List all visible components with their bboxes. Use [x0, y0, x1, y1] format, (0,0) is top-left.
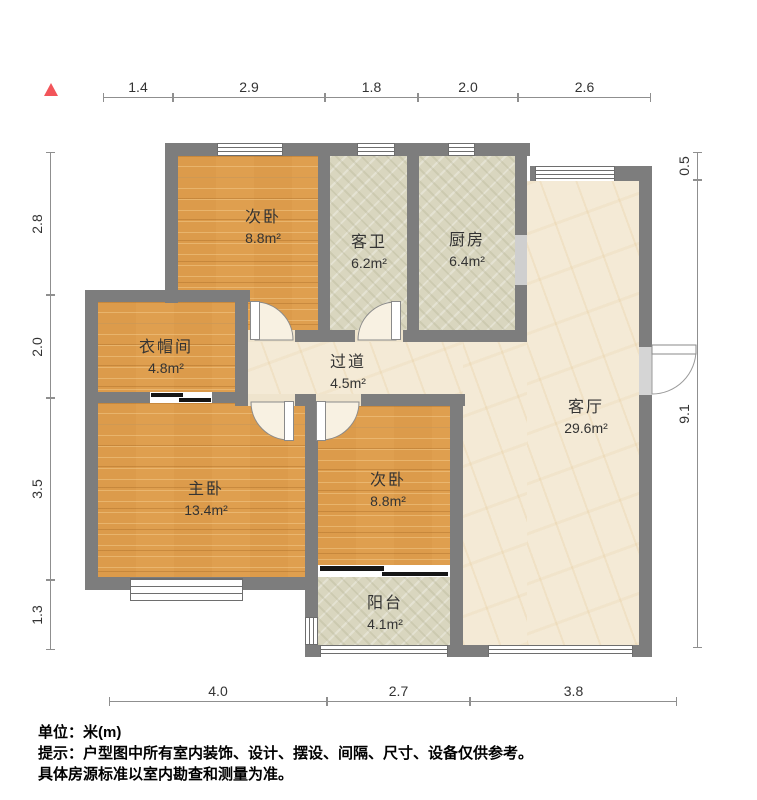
room-name: 衣帽间 [139, 333, 193, 357]
door-arc-bedroom-bottom [321, 402, 359, 440]
room-area: 6.2m² [351, 255, 387, 271]
sliding-door-balcony [320, 565, 448, 577]
door-arc-master-bedroom [251, 402, 289, 440]
window-balcony-side [305, 617, 318, 645]
dim-top-seg-2: 1.8 [325, 97, 418, 98]
north-arrow-icon [44, 83, 58, 96]
room-area: 6.4m² [449, 253, 485, 269]
wall-bath-kitchen [407, 156, 419, 330]
dim-label: 2.0 [29, 337, 45, 356]
window-balcony [320, 645, 448, 657]
room-label-guest-bath: 客卫 6.2m² [351, 228, 387, 271]
door-leaf-bedroom-top [251, 302, 260, 340]
room-name: 主卧 [184, 475, 228, 499]
footer-note-line-2: 具体房源标准以室内勘查和测量为准。 [38, 764, 533, 785]
dim-label: 2.7 [389, 683, 408, 699]
sliding-door-panel [320, 566, 384, 571]
dim-right-seg-1: 9.1 [697, 180, 698, 648]
room-name: 厨房 [449, 226, 485, 250]
floor-living-room-lower [463, 342, 527, 645]
room-area: 4.8m² [139, 360, 193, 376]
door-leaf-guest-bath [392, 302, 401, 340]
wall-bedroom-bath [318, 156, 330, 330]
wall-left [85, 290, 98, 590]
room-area: 29.6m² [564, 420, 608, 436]
door-bedroom-top [250, 298, 298, 344]
dim-top-seg-3: 2.0 [418, 97, 518, 98]
dim-label: 1.3 [29, 605, 45, 624]
floorplan-canvas: 次卧 8.8m² 客卫 6.2m² 厨房 6.4m² 过道 4.5m² 客厅 2… [0, 0, 757, 800]
dim-bottom-seg-1: 2.7 [327, 701, 470, 702]
dim-label: 2.0 [458, 79, 477, 95]
room-name: 次卧 [370, 466, 406, 490]
room-name: 过道 [330, 348, 366, 372]
dim-top-seg-0: 1.4 [103, 97, 173, 98]
dim-label: 1.8 [362, 79, 381, 95]
footer-note-line-1: 提示：户型图中所有室内装饰、设计、摆设、间隔、尺寸、设备仅供参考。 [38, 743, 533, 764]
dim-left-seg-3: 1.3 [50, 580, 51, 650]
room-area: 8.8m² [370, 493, 406, 509]
dim-label: 2.8 [29, 214, 45, 233]
dim-left-seg-1: 2.0 [50, 295, 51, 398]
door-guest-bath [353, 298, 401, 344]
wall-bedroom-bottom-right [450, 394, 463, 645]
room-label-bedroom-top: 次卧 8.8m² [245, 203, 281, 246]
sliding-door-panel [151, 393, 183, 397]
door-arc-bedroom-top [255, 302, 293, 340]
dim-label: 2.6 [575, 79, 594, 95]
wall-cloakroom-right [235, 290, 248, 406]
dim-bottom-seg-0: 4.0 [109, 701, 327, 702]
footer-unit-line: 单位：米(m) [38, 722, 533, 743]
sliding-door-panel [382, 572, 448, 576]
door-arc-entry [652, 350, 696, 394]
dim-label: 0.5 [676, 156, 692, 175]
dim-top-seg-1: 2.9 [173, 97, 325, 98]
room-label-hallway: 过道 4.5m² [330, 348, 366, 391]
wall-right-lower [639, 395, 652, 657]
opening-kitchen-entry [515, 235, 527, 285]
dim-label: 4.0 [208, 683, 227, 699]
dim-label: 2.9 [239, 79, 258, 95]
wall-kitchen-right-upper [515, 143, 527, 235]
room-label-master-bedroom: 主卧 13.4m² [184, 475, 228, 518]
dim-left-seg-2: 3.5 [50, 398, 51, 580]
door-master-bedroom [246, 400, 294, 446]
room-label-balcony: 阳台 4.1m² [367, 589, 403, 632]
door-leaf-master-bedroom [285, 402, 294, 441]
sliding-door-cloakroom [150, 392, 212, 403]
room-label-bedroom-bottom: 次卧 8.8m² [370, 466, 406, 509]
window-guest-bath [357, 143, 395, 156]
room-label-living-room: 客厅 29.6m² [564, 393, 608, 436]
wall-bedroom-top-left [165, 143, 178, 303]
door-leaf-bedroom-bottom [317, 402, 326, 441]
window-kitchen [448, 143, 475, 156]
window-living-bottom [488, 645, 633, 657]
dim-label: 3.8 [564, 683, 583, 699]
room-area: 4.1m² [367, 616, 403, 632]
room-area: 13.4m² [184, 502, 228, 518]
dim-label: 3.5 [29, 479, 45, 498]
dim-bottom-seg-2: 3.8 [470, 701, 677, 702]
dim-label: 9.1 [676, 404, 692, 423]
room-name: 阳台 [367, 589, 403, 613]
room-label-kitchen: 厨房 6.4m² [449, 226, 485, 269]
door-entry [650, 342, 704, 398]
room-area: 4.5m² [330, 375, 366, 391]
room-label-cloakroom: 衣帽间 4.8m² [139, 333, 193, 376]
room-area: 8.8m² [245, 230, 281, 246]
dim-top-seg-4: 2.6 [518, 97, 651, 98]
door-bedroom-bottom [316, 400, 364, 446]
door-arc-guest-bath [358, 302, 396, 340]
sliding-door-panel [179, 398, 211, 402]
wall-right-upper [639, 166, 652, 347]
dim-left-seg-0: 2.8 [50, 152, 51, 295]
window-living-top [535, 166, 615, 181]
dim-label: 1.4 [128, 79, 147, 95]
room-name: 客厅 [564, 393, 608, 417]
window-master-bedroom [130, 578, 243, 601]
footer-notes: 单位：米(m) 提示：户型图中所有室内装饰、设计、摆设、间隔、尺寸、设备仅供参考… [38, 722, 533, 785]
window-bedroom-top [217, 143, 283, 156]
door-leaf-entry [652, 345, 696, 354]
room-name: 次卧 [245, 203, 281, 227]
dim-right-seg-0: 0.5 [697, 152, 698, 180]
room-name: 客卫 [351, 228, 387, 252]
